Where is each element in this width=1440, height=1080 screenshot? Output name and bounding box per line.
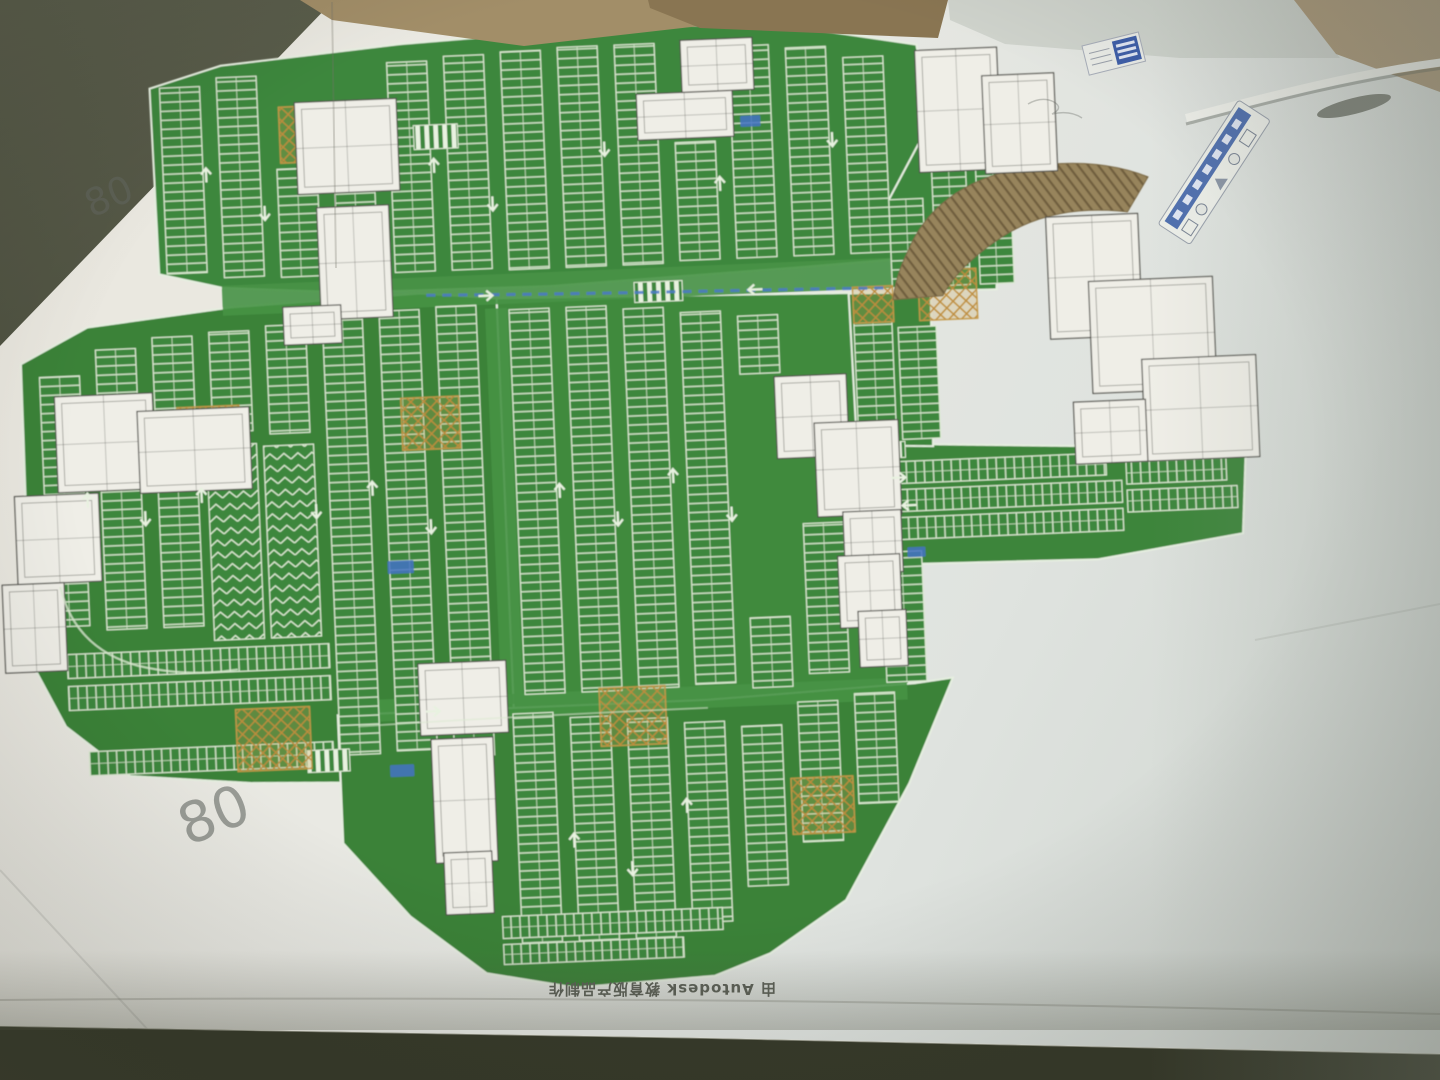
photo-of-parking-plan: 80 80 由 Autodesk 教育版产品制作 bbox=[0, 0, 1440, 1080]
scene-canvas: 80 80 由 Autodesk 教育版产品制作 bbox=[0, 0, 1440, 1080]
vignette bbox=[0, 0, 1440, 1080]
